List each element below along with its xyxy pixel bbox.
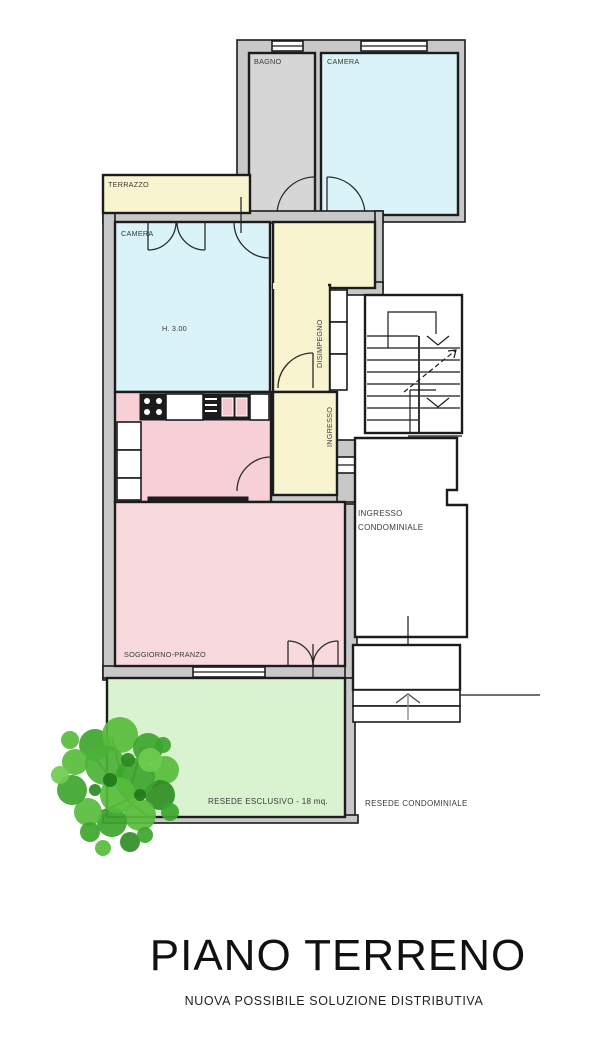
terrazzo-label: TERRAZZO bbox=[108, 180, 149, 189]
plan-title: PIANO TERRENO bbox=[150, 931, 526, 980]
closet-icon bbox=[330, 290, 347, 390]
resede-esclusivo-label: RESEDE ESCLUSIVO - 18 mq. bbox=[208, 797, 328, 806]
tree bbox=[51, 717, 179, 856]
top-block: BAGNO CAMERA bbox=[237, 40, 465, 222]
window-icon bbox=[193, 667, 265, 677]
stairwell bbox=[365, 295, 462, 436]
ingresso-label: INGRESSO bbox=[325, 407, 334, 447]
ingresso-condominiale-label-1: INGRESSO bbox=[358, 509, 403, 518]
soggiorno-label: SOGGIORNO-PRANZO bbox=[124, 650, 206, 659]
room-kitchen bbox=[115, 392, 271, 503]
ingresso-condominiale-label-2: CONDOMINIALE bbox=[358, 523, 423, 532]
resede-condominiale-label: RESEDE CONDOMINIALE bbox=[365, 799, 468, 808]
room-disimpegno: DISIMPEGNO bbox=[273, 222, 375, 392]
bagno-label: BAGNO bbox=[254, 57, 281, 66]
disimpegno-label: DISIMPEGNO bbox=[315, 319, 324, 368]
room-ingresso-condominiale: INGRESSO CONDOMINIALE bbox=[355, 438, 467, 662]
camera-top-label: CAMERA bbox=[327, 57, 359, 66]
room-camera-top bbox=[321, 53, 458, 215]
floor-plan: BAGNO CAMERA TERRAZZO CAMERA H. 3.00 bbox=[0, 0, 614, 1050]
building-entry-steps bbox=[353, 645, 540, 722]
room-terrazzo: TERRAZZO bbox=[103, 175, 250, 213]
floor-plan-page: BAGNO CAMERA TERRAZZO CAMERA H. 3.00 bbox=[0, 0, 614, 1050]
room-camera: CAMERA H. 3.00 bbox=[115, 197, 270, 392]
plan-subtitle: NUOVA POSSIBILE SOLUZIONE DISTRIBUTIVA bbox=[185, 994, 484, 1008]
room-bagno bbox=[249, 53, 315, 215]
camera-height-note: H. 3.00 bbox=[162, 324, 187, 333]
